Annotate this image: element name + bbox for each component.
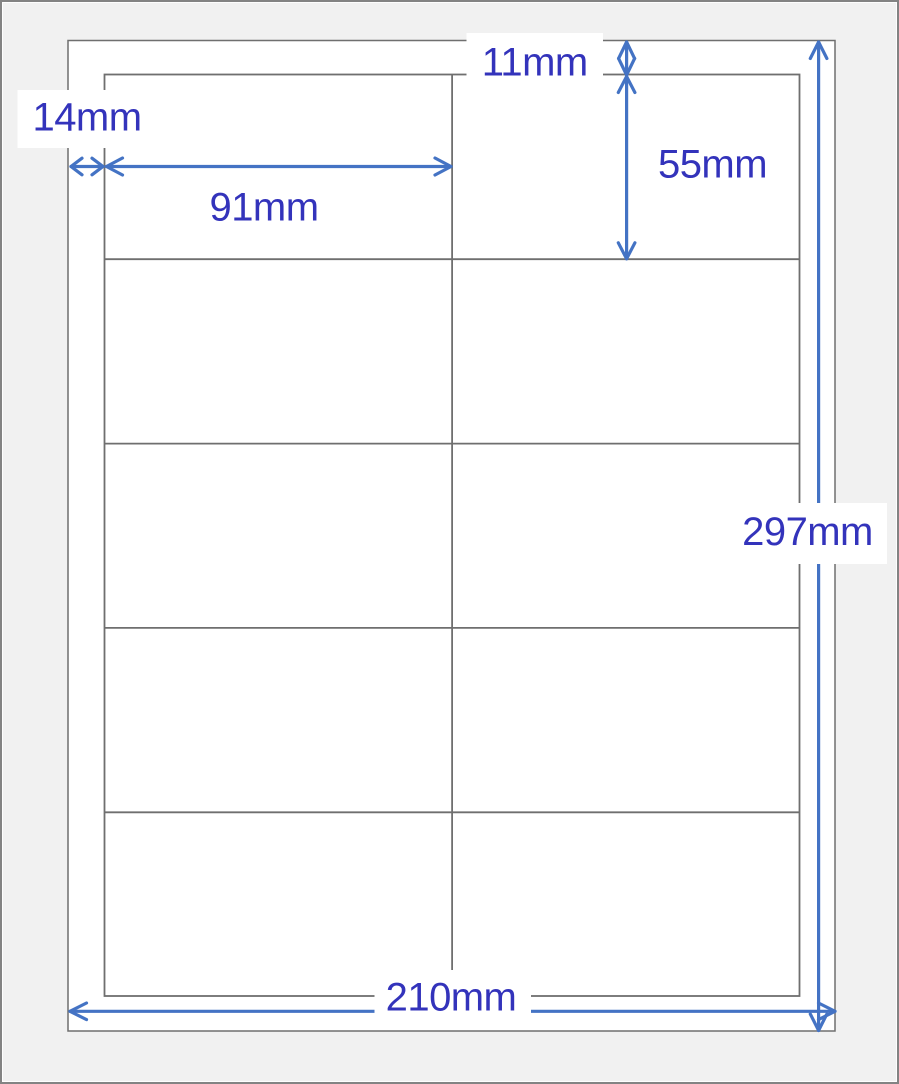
svg-text:11mm: 11mm [482,41,588,85]
svg-text:210mm: 210mm [386,976,517,1020]
svg-text:297mm: 297mm [742,510,873,554]
svg-text:55mm: 55mm [658,143,767,187]
svg-text:91mm: 91mm [210,186,319,230]
svg-text:14mm: 14mm [33,96,142,140]
